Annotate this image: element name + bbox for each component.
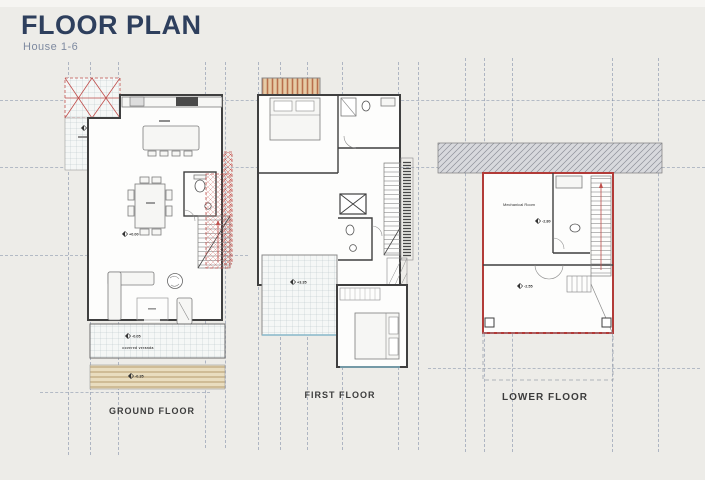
level-marker-mechanical: -2.80 <box>535 218 550 223</box>
roof-terrace: +3.35 <box>262 255 337 335</box>
ground-floor-plan: -0.05 <box>58 62 238 422</box>
dining-area <box>128 177 172 235</box>
wood-deck: -0.35 <box>90 365 225 389</box>
mechanical-room-label: Mechanical Room <box>503 202 536 207</box>
svg-text:+3.35: +3.35 <box>297 280 307 284</box>
footprint-dashed-outline <box>483 333 613 380</box>
page-subtitle: House 1-6 <box>23 41 78 53</box>
carport-pergola <box>65 78 120 118</box>
toilet-icon <box>195 180 205 192</box>
toilet-icon <box>346 225 354 235</box>
first-floor-label: FIRST FLOOR <box>305 390 376 400</box>
column <box>602 318 611 327</box>
kitchen-island <box>143 126 199 150</box>
sink-counter <box>556 176 582 188</box>
ground-floor-label: GROUND FLOOR <box>109 406 195 416</box>
sink-icon <box>381 98 395 106</box>
svg-text:-0.05: -0.05 <box>132 334 141 338</box>
first-floor-plan: +3.35 FIRST FLOOR <box>250 68 430 413</box>
earth-hatch-band <box>438 143 662 173</box>
svg-text:-2.55: -2.55 <box>524 284 533 288</box>
svg-text:+0.00: +0.00 <box>129 232 139 236</box>
toilet-icon <box>570 224 580 232</box>
louver-screen <box>403 161 411 257</box>
top-strip <box>0 0 705 7</box>
staircase <box>384 158 413 260</box>
column <box>485 318 494 327</box>
level-marker-ground: +0.00 <box>122 231 138 236</box>
bedroom2 <box>337 285 407 367</box>
veranda-caption: covered veranda <box>122 346 153 350</box>
floor-plan-sheet: FLOOR PLAN House 1-6 <box>0 0 705 480</box>
dining-table <box>135 184 165 228</box>
sink-icon <box>350 245 357 252</box>
bedroom1-bed <box>270 98 320 140</box>
svg-text:-2.80: -2.80 <box>542 219 551 223</box>
toilet-icon <box>362 101 370 111</box>
svg-text:-0.35: -0.35 <box>135 374 144 378</box>
lower-floor-plan: Mechanical Room -2.80 -2.55 LOWER FLOOR <box>435 88 670 413</box>
page-title: FLOOR PLAN <box>21 10 202 41</box>
covered-veranda: -0.05 covered veranda <box>90 324 225 358</box>
lower-floor-label: LOWER FLOOR <box>502 392 588 403</box>
